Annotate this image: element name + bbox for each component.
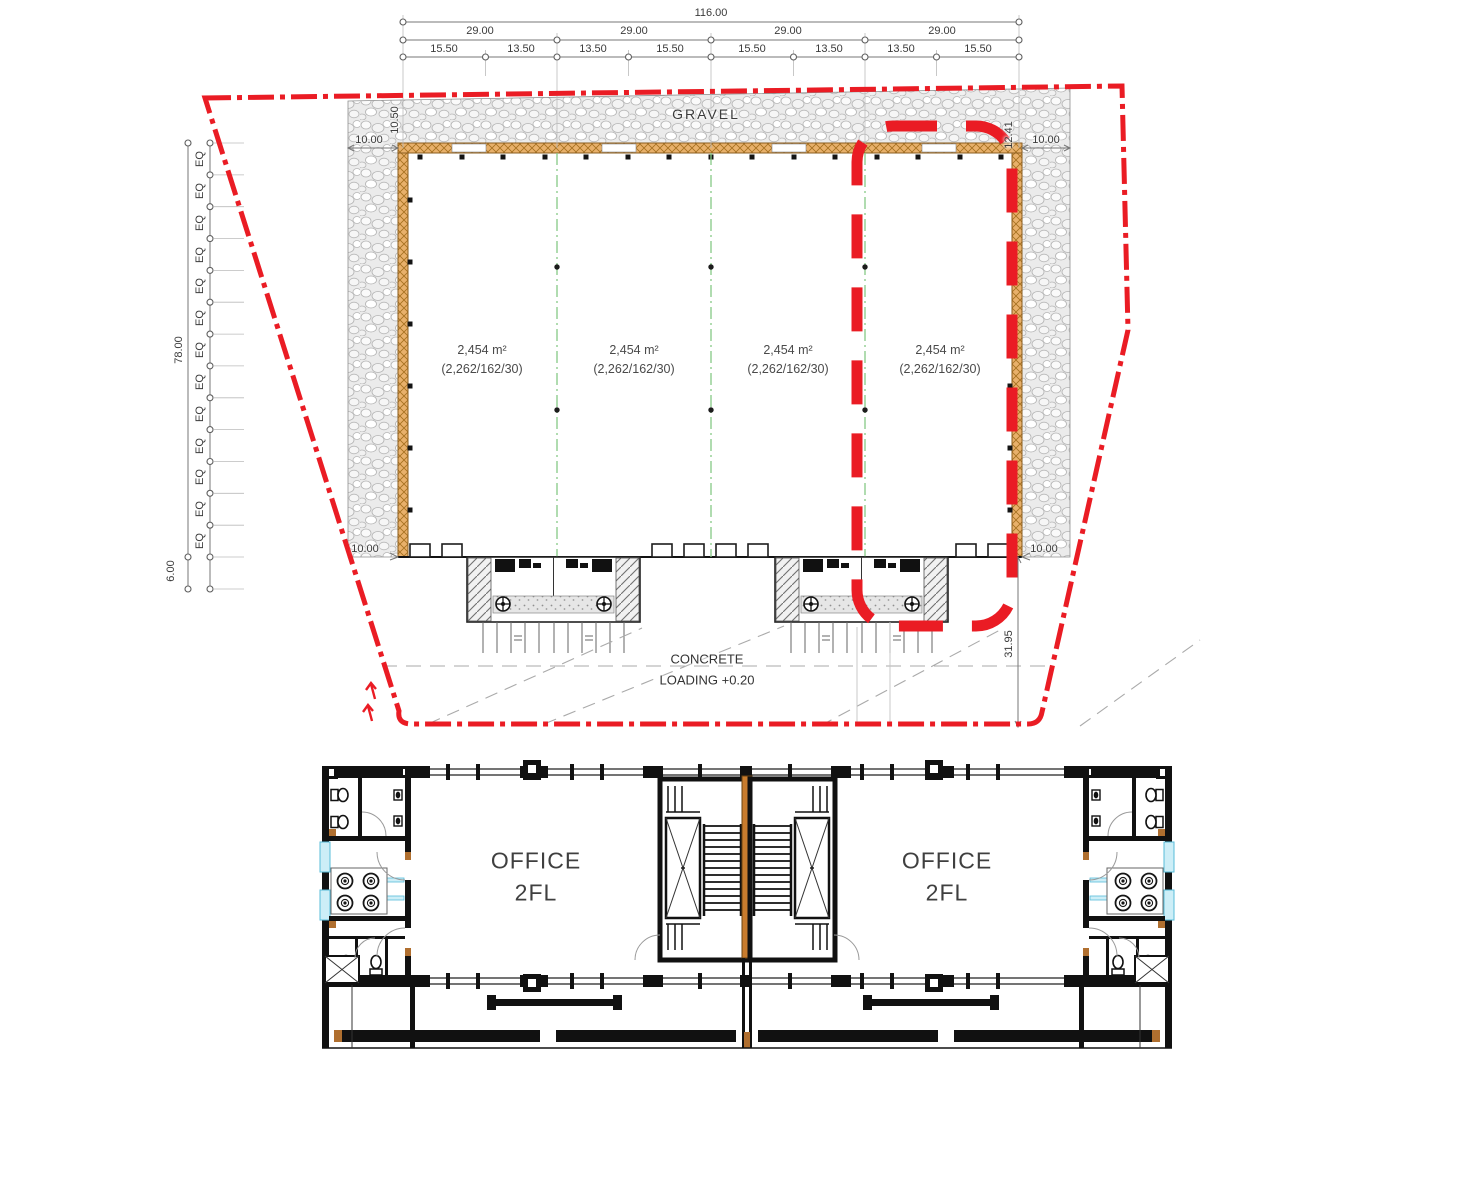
dim-eq-12: EQ: [194, 501, 206, 517]
office-left-level: 2FL: [515, 880, 558, 907]
dim-eq-4: EQ: [194, 247, 206, 263]
dock-office-block-left: [467, 557, 640, 653]
dim-eq-7: EQ: [194, 342, 206, 358]
office-left-name: OFFICE: [491, 848, 581, 875]
dim-gravel-right: 12.41: [1003, 121, 1015, 149]
dim-sub-4: 15.50: [656, 43, 684, 55]
dim-bay-4: 29.00: [928, 25, 956, 37]
dim-bay-1: 29.00: [466, 25, 494, 37]
dim-sub-2: 13.50: [507, 43, 535, 55]
dim-total-width: 116.00: [695, 7, 728, 19]
dim-sub-5: 15.50: [738, 43, 766, 55]
dim-sub-7: 13.50: [887, 43, 915, 55]
concrete-label-line2: LOADING +0.20: [659, 673, 754, 688]
dim-offset-top-right: 10.00: [1032, 134, 1060, 146]
office-right-level: 2FL: [926, 880, 969, 907]
bottom-main-wall: [322, 973, 1172, 992]
toilet-block-left: [325, 768, 411, 985]
dim-eq-2: EQ: [194, 183, 206, 199]
dim-bay-2: 29.00: [620, 25, 648, 37]
dim-sub-6: 13.50: [815, 43, 843, 55]
unit1-breakdown: (2,262/162/30): [441, 362, 522, 376]
dim-eq-8: EQ: [194, 374, 206, 390]
dim-bay-3: 29.00: [774, 25, 802, 37]
dim-offset-bottom-left: 10.00: [351, 543, 379, 555]
floor-plan-2fl: [320, 760, 1174, 1048]
unit3-breakdown: (2,262/162/30): [747, 362, 828, 376]
plan-linework: [0, 0, 1480, 1192]
unit4-breakdown: (2,262/162/30): [899, 362, 980, 376]
unit1-area: 2,454 m²: [457, 343, 506, 357]
dim-gravel-left: 10.50: [389, 106, 401, 134]
dim-left-offset: 6.00: [165, 560, 177, 581]
dim-sub-8: 15.50: [964, 43, 992, 55]
yard-depth-dim: [1015, 557, 1021, 727]
unit4-area: 2,454 m²: [915, 343, 964, 357]
unit3-area: 2,454 m²: [763, 343, 812, 357]
dim-eq-11: EQ: [194, 469, 206, 485]
architectural-drawing: 116.00 29.00 29.00 29.00 29.00 15.50 13.…: [0, 0, 1480, 1192]
dim-eq-13: EQ: [194, 533, 206, 549]
gravel-label: GRAVEL: [672, 106, 740, 122]
unit2-breakdown: (2,262/162/30): [593, 362, 674, 376]
dim-eq-9: EQ: [194, 406, 206, 422]
dim-offset-bottom-right: 10.00: [1030, 543, 1058, 555]
parking-stripes: [483, 622, 624, 653]
concrete-label-line1: CONCRETE: [671, 652, 744, 667]
dim-eq-1: EQ: [194, 151, 206, 167]
dim-sub-1: 15.50: [430, 43, 458, 55]
office-right-name: OFFICE: [902, 848, 992, 875]
dim-left-height: 78.00: [173, 336, 185, 364]
dim-eq-6: EQ: [194, 310, 206, 326]
dim-sub-3: 13.50: [579, 43, 607, 55]
dim-eq-3: EQ: [194, 215, 206, 231]
stair-core-right: [750, 779, 859, 960]
entrance-arrow-icon: [363, 683, 376, 721]
stair-core-left: [635, 779, 745, 960]
dim-eq-5: EQ: [194, 278, 206, 294]
dim-yard-depth: 31.95: [1003, 630, 1015, 658]
dim-eq-10: EQ: [194, 438, 206, 454]
unit2-area: 2,454 m²: [609, 343, 658, 357]
toilet-block-right: [1083, 768, 1169, 985]
dim-offset-top-left: 10.00: [355, 134, 383, 146]
